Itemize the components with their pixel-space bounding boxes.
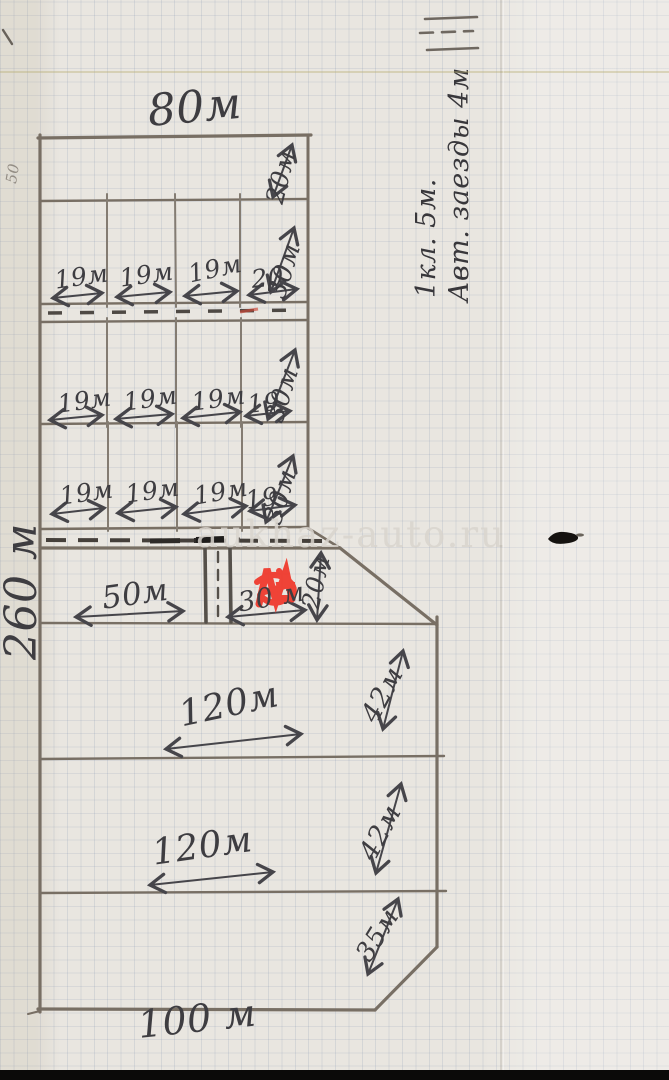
- row1-cell2-label: 19м: [118, 258, 175, 290]
- row3-cell4-label: 19: [244, 483, 280, 512]
- stray-pencil-mark: [3, 30, 12, 44]
- row2-cell2-label: 19м: [122, 382, 179, 414]
- left-height-label: 260 м: [0, 523, 44, 660]
- black-blot: [548, 532, 584, 544]
- watermark-text: aukhaz-auto.ru: [196, 513, 506, 556]
- graph-paper-sheet: 80м 260 м 100 м 20м 30м 30м 30м 19м 19м …: [0, 0, 669, 1080]
- note-line2: Авт. заезды 4м: [446, 67, 473, 302]
- row3-cell2-label: 19м: [124, 474, 181, 506]
- paper-crease-horizontal: [0, 71, 669, 73]
- paper-crease-highlight: [503, 0, 504, 1080]
- photo-bottom-edge: [0, 1070, 669, 1080]
- driveway-lines: [205, 548, 231, 622]
- top-width-label: 80м: [146, 82, 243, 134]
- margin-note: 50: [4, 162, 22, 184]
- row1-cell4-label: 20: [250, 264, 285, 292]
- row1-cell1-label: 19м: [53, 260, 110, 292]
- mid-left-width-label: 50м: [100, 575, 170, 615]
- row2-cell4-label: 19: [246, 389, 281, 417]
- paper-crease-vertical: [500, 0, 502, 1080]
- row2-cell1-label: 19м: [56, 384, 113, 416]
- row2-cell3-label: 19м: [190, 382, 247, 414]
- note-line1: 1кл. 5м.: [413, 178, 440, 298]
- row3-cell1-label: 19м: [58, 476, 115, 508]
- bottom-width-label: 100 м: [136, 994, 258, 1044]
- road-legend-lines: [420, 17, 478, 50]
